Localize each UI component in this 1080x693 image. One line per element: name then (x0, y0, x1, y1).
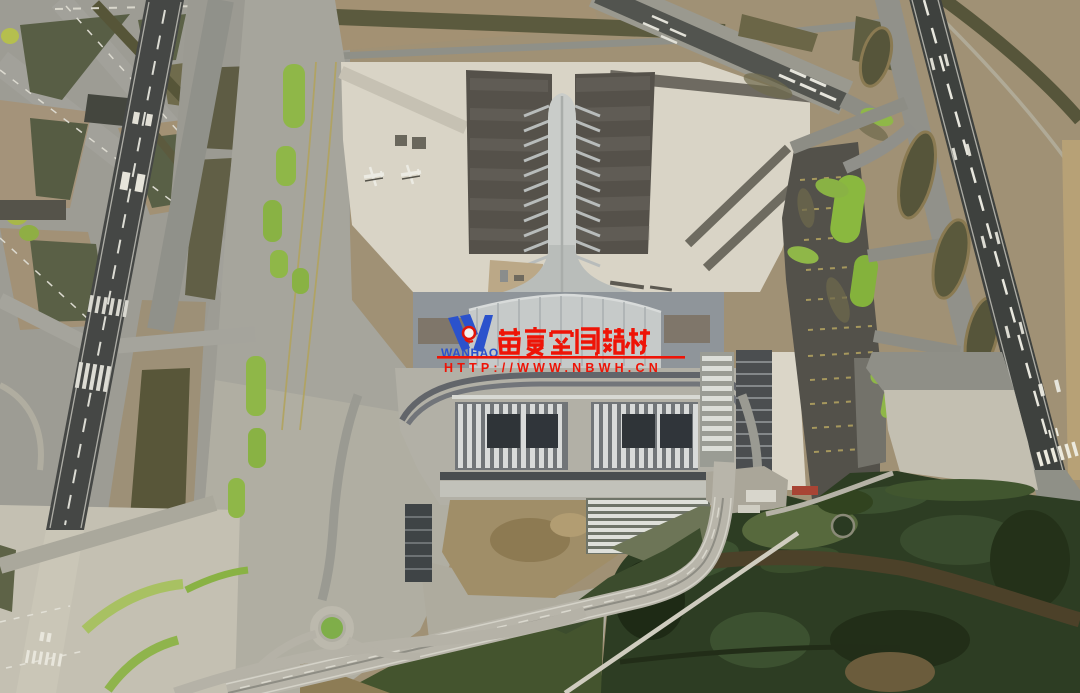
svg-text:HTTP://WWW.NBWH.CN: HTTP://WWW.NBWH.CN (444, 361, 662, 375)
